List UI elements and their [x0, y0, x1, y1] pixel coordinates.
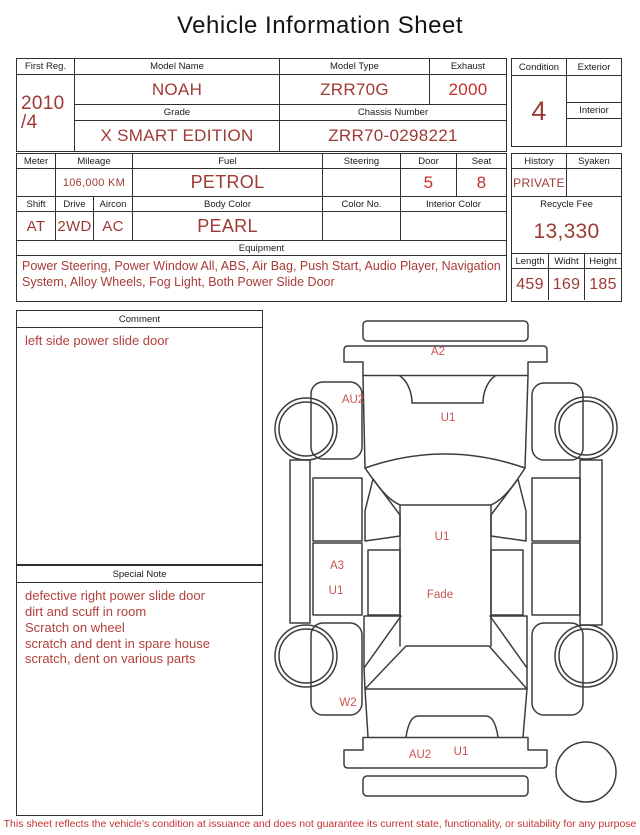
- meter-value: [17, 169, 56, 196]
- chassis-number-label: Chassis Number: [280, 105, 506, 121]
- drive-label: Drive: [56, 197, 94, 211]
- body-color-label: Body Color: [133, 197, 323, 211]
- special-note-line: defective right power slide door: [25, 588, 254, 604]
- height-label: Height: [585, 254, 621, 268]
- front-grille-bar: [363, 321, 528, 341]
- damage-label-a3: A3: [330, 560, 344, 572]
- seat-value: 8: [457, 169, 506, 196]
- first-reg-label: First Reg.: [17, 59, 75, 75]
- front-right-fender: [532, 383, 583, 460]
- left-rocker: [290, 460, 310, 623]
- interior-color-label: Interior Color: [401, 197, 506, 211]
- damage-label-w2: W2: [339, 697, 356, 709]
- comment-panel: Comment left side power slide door: [16, 310, 263, 565]
- left-slide-glass: [368, 550, 400, 615]
- chassis-number-value: ZRR70-0298221: [280, 121, 506, 151]
- grade-label: Grade: [75, 105, 280, 121]
- length-label: Length: [512, 254, 549, 268]
- front-right-wheel: [555, 397, 617, 459]
- meter-label: Meter: [17, 154, 56, 168]
- width-label: Widht: [549, 254, 585, 268]
- special-note-line: Scratch on wheel: [25, 620, 254, 636]
- windshield-top: [365, 454, 525, 468]
- mileage-label: Mileage: [56, 154, 133, 168]
- front-right-door: [532, 478, 580, 541]
- rear-window: [365, 646, 527, 689]
- history-value: PRIVATE: [512, 169, 567, 196]
- grade-value: X SMART EDITION: [75, 121, 280, 151]
- car-damage-diagram: A2 AU2 U1 U1 A3 U1 Fade W2 AU2 U1: [265, 313, 640, 813]
- history-label: History: [512, 154, 567, 168]
- damage-label-u1-roof: U1: [435, 531, 450, 543]
- rear-bumper: [344, 738, 547, 769]
- equipment-label: Equipment: [17, 241, 506, 255]
- comment-header: Comment: [17, 311, 262, 328]
- shift-label: Shift: [17, 197, 56, 211]
- drive-value: 2WD: [56, 212, 94, 240]
- interior-label: Interior: [567, 103, 621, 119]
- model-name-label: Model Name: [75, 59, 280, 75]
- specs-table: Meter Mileage Fuel Steering Door Seat 10…: [16, 153, 507, 302]
- exterior-grade-value: [567, 76, 621, 103]
- shift-value: AT: [17, 212, 56, 240]
- model-type-value: ZRR70G: [280, 75, 430, 105]
- interior-grade-value: [567, 119, 621, 146]
- hood-cowl-line: [400, 376, 495, 403]
- front-left-wheel: [275, 398, 337, 460]
- special-note-header: Special Note: [17, 566, 262, 583]
- color-no-value: [323, 212, 401, 240]
- aircon-label: Aircon: [94, 197, 133, 211]
- steering-label: Steering: [323, 154, 401, 168]
- fuel-label: Fuel: [133, 154, 323, 168]
- damage-label-u1-door: U1: [329, 585, 344, 597]
- special-note-panel: Special Note defective right power slide…: [16, 565, 263, 816]
- page-title: Vehicle Information Sheet: [0, 12, 640, 40]
- condition-grade-value: 4: [512, 76, 567, 146]
- door-label: Door: [401, 154, 457, 168]
- special-note-line: scratch, dent on various parts: [25, 651, 254, 667]
- rear-right-wheel: [555, 625, 617, 687]
- fuel-value: PETROL: [133, 169, 323, 196]
- rear-left-wheel: [275, 625, 337, 687]
- damage-label-u1-rear: U1: [454, 746, 469, 758]
- exhaust-label: Exhaust: [430, 59, 506, 75]
- vehicle-information-sheet: Vehicle Information Sheet First Reg. Mod…: [0, 0, 640, 835]
- syaken-value: [567, 169, 621, 196]
- equipment-text: Power Steering, Power Window All, ABS, A…: [17, 256, 506, 301]
- right-front-glass: [491, 479, 526, 541]
- right-quarter-glass: [490, 616, 527, 668]
- left-front-glass: [365, 479, 400, 541]
- front-left-door: [313, 478, 362, 541]
- height-value: 185: [585, 269, 621, 300]
- aircon-value: AC: [94, 212, 133, 240]
- right-rocker: [580, 460, 602, 625]
- condition-label: Condition: [512, 59, 567, 76]
- damage-label-u1-hood: U1: [441, 412, 456, 424]
- first-reg-value: 2010 /4: [17, 75, 75, 151]
- damage-label-fade: Fade: [427, 589, 453, 601]
- steering-value: [323, 169, 401, 196]
- front-bumper: [344, 346, 547, 376]
- tailgate-arch: [406, 716, 498, 737]
- first-reg-year: 2010: [21, 94, 64, 113]
- mileage-value: 106,000 KM: [56, 169, 133, 196]
- vehicle-identity-table: First Reg. Model Name Model Type Exhaust…: [16, 58, 507, 152]
- seat-label: Seat: [457, 154, 506, 168]
- damage-label-a2: A2: [431, 346, 445, 358]
- model-type-label: Model Type: [280, 59, 430, 75]
- syaken-label: Syaken: [567, 154, 621, 168]
- special-note-line: dirt and scuff in room: [25, 604, 254, 620]
- special-note-line: scratch and dent in spare house: [25, 636, 254, 652]
- model-name-value: NOAH: [75, 75, 280, 105]
- condition-box: Condition Exterior 4 Interior: [511, 58, 622, 147]
- body-color-value: PEARL: [133, 212, 323, 240]
- left-quarter-glass: [364, 616, 401, 668]
- length-value: 459: [512, 269, 549, 300]
- left-slide-door: [313, 543, 362, 615]
- footer-disclaimer: This sheet reflects the vehicle's condit…: [0, 818, 640, 830]
- right-slide-glass: [491, 550, 523, 615]
- width-value: 169: [549, 269, 585, 300]
- interior-color-value: [401, 212, 506, 240]
- history-fee-box: History Syaken PRIVATE Recycle Fee 13,33…: [511, 153, 622, 302]
- car-outline-diagram: [265, 313, 640, 813]
- spare-tire: [556, 742, 616, 802]
- right-slide-door: [532, 543, 580, 615]
- recycle-fee-value: 13,330: [512, 211, 621, 253]
- damage-label-au2-rear: AU2: [409, 749, 431, 761]
- damage-label-au2-front: AU2: [342, 394, 364, 406]
- exterior-label: Exterior: [567, 59, 621, 76]
- comment-text: left side power slide door: [17, 328, 262, 354]
- door-value: 5: [401, 169, 457, 196]
- exhaust-value: 2000: [430, 75, 506, 105]
- first-reg-month: /4: [21, 113, 37, 132]
- color-no-label: Color No.: [323, 197, 401, 211]
- rear-lower-bar: [363, 776, 528, 796]
- recycle-fee-label: Recycle Fee: [512, 197, 621, 211]
